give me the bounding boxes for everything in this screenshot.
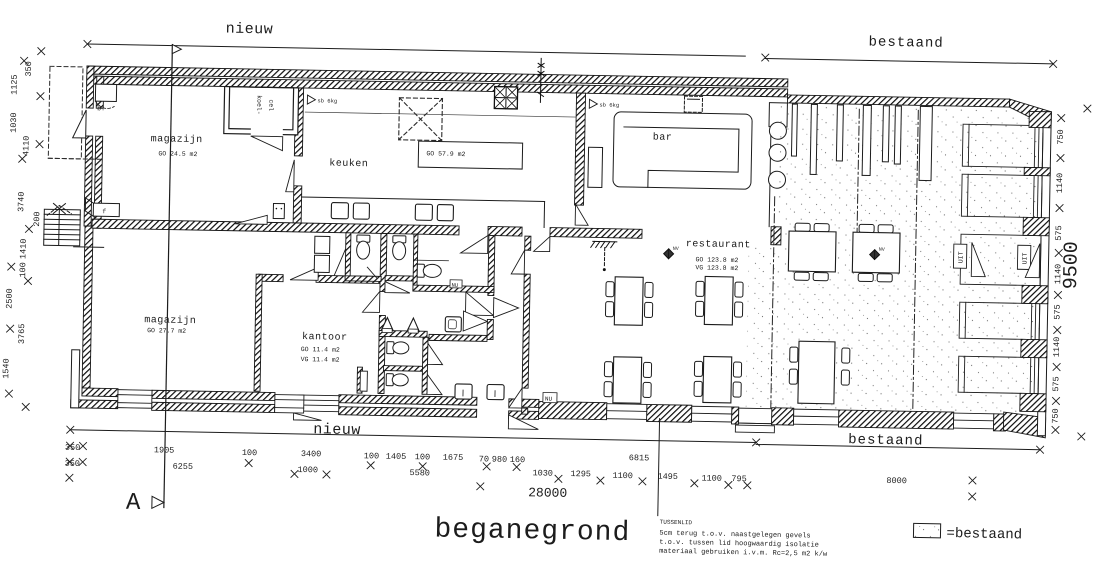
svg-text:1295: 1295	[570, 469, 591, 479]
svg-text:GO 24.5 m2: GO 24.5 m2	[158, 150, 197, 158]
svg-text:sb 6kg: sb 6kg	[317, 97, 337, 104]
svg-text:cel: cel	[267, 99, 274, 111]
svg-text:restaurant: restaurant	[686, 239, 751, 251]
svg-text:NV: NV	[879, 247, 885, 253]
svg-text:bestaand: bestaand	[848, 432, 924, 449]
svg-text:sb 6kg: sb 6kg	[599, 101, 619, 108]
svg-text:keuken: keuken	[329, 157, 368, 170]
svg-text:160: 160	[510, 455, 525, 465]
svg-text:575: 575	[1054, 225, 1064, 240]
svg-text:UIT: UIT	[958, 251, 965, 263]
svg-text:4110: 4110	[21, 136, 31, 157]
svg-text:1100: 1100	[612, 471, 633, 481]
svg-text:1405: 1405	[386, 452, 407, 462]
svg-text:VG 11.4 m2: VG 11.4 m2	[301, 356, 340, 364]
svg-text:3740: 3740	[16, 192, 26, 213]
svg-text:1495: 1495	[657, 472, 678, 482]
svg-text:980: 980	[492, 455, 507, 465]
svg-text:350: 350	[65, 443, 80, 453]
svg-text:1905: 1905	[154, 445, 175, 455]
svg-text:8000: 8000	[886, 476, 907, 486]
svg-text:1030: 1030	[9, 112, 19, 133]
svg-text:NU: NU	[545, 396, 553, 403]
svg-text:9500: 9500	[1060, 241, 1084, 289]
svg-text:b.: b.	[97, 105, 105, 112]
svg-text:28000: 28000	[528, 485, 567, 501]
svg-text:=bestaand: =bestaand	[946, 526, 1022, 543]
svg-text:750: 750	[1051, 408, 1061, 423]
svg-text:nieuw: nieuw	[313, 421, 361, 439]
svg-text:1540: 1540	[1, 358, 11, 379]
svg-text:1140: 1140	[1055, 173, 1065, 194]
svg-text:350: 350	[65, 459, 80, 469]
svg-text:6255: 6255	[173, 462, 194, 472]
svg-text:UIT: UIT	[1021, 253, 1028, 265]
svg-text:beganegrond: beganegrond	[434, 515, 630, 550]
svg-text:1410: 1410	[18, 239, 28, 260]
svg-text:1100: 1100	[701, 473, 722, 483]
svg-text:3400: 3400	[301, 449, 322, 459]
svg-text:350: 350	[24, 61, 34, 76]
svg-text:750: 750	[1056, 129, 1066, 144]
svg-text:575: 575	[1051, 376, 1061, 391]
svg-text:3765: 3765	[17, 324, 27, 345]
svg-text:GO 11.4 m2: GO 11.4 m2	[301, 346, 340, 354]
svg-text:100: 100	[18, 262, 28, 277]
svg-text:koel-: koel-	[255, 95, 262, 115]
svg-text:VG 123.8 m2: VG 123.8 m2	[695, 264, 738, 272]
svg-text:GO 27.7 m2: GO 27.7 m2	[147, 327, 186, 335]
svg-text:bar: bar	[653, 131, 673, 143]
svg-text:NV: NV	[673, 246, 679, 252]
svg-text:magazijn: magazijn	[144, 314, 196, 327]
svg-text:GO 57.9 m2: GO 57.9 m2	[426, 150, 465, 158]
svg-text:1000: 1000	[297, 465, 318, 475]
svg-text:1125: 1125	[9, 74, 19, 95]
svg-text:200: 200	[32, 211, 42, 226]
svg-text:magazijn: magazijn	[151, 133, 203, 146]
svg-text:100: 100	[242, 448, 257, 458]
svg-text:TUSSENLID: TUSSENLID	[660, 519, 693, 527]
svg-text:2500: 2500	[4, 288, 14, 309]
svg-text:1675: 1675	[443, 453, 464, 463]
svg-text:f: f	[102, 208, 106, 215]
svg-text:GO 123.8 m2: GO 123.8 m2	[695, 256, 738, 264]
svg-text:A: A	[126, 490, 141, 517]
svg-text:nieuw: nieuw	[226, 21, 274, 39]
svg-text:bestaand: bestaand	[868, 34, 944, 51]
svg-text:1140: 1140	[1052, 337, 1062, 358]
svg-text:6815: 6815	[629, 453, 650, 463]
svg-text:575: 575	[1052, 304, 1062, 319]
svg-text:NU: NU	[451, 282, 458, 289]
svg-text:1030: 1030	[532, 468, 553, 478]
svg-text:kantoor: kantoor	[302, 331, 348, 344]
svg-text:100: 100	[415, 452, 430, 462]
svg-text:100: 100	[364, 451, 379, 461]
